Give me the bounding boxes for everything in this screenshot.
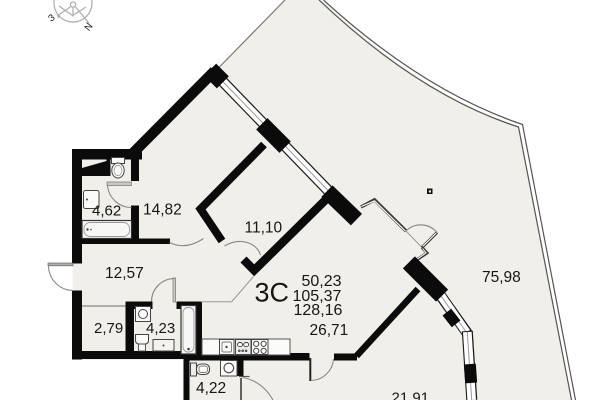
svg-text:128,16: 128,16 (294, 302, 343, 319)
svg-text:3C: 3C (255, 278, 290, 308)
svg-text:12,57: 12,57 (105, 265, 144, 282)
svg-text:4,62: 4,62 (92, 203, 121, 220)
svg-text:26,71: 26,71 (310, 322, 349, 339)
svg-text:14,82: 14,82 (143, 202, 182, 219)
svg-text:75,98: 75,98 (482, 269, 521, 286)
svg-text:11,10: 11,10 (245, 220, 283, 237)
svg-text:2,79: 2,79 (94, 320, 123, 337)
svg-text:4,22: 4,22 (196, 380, 226, 397)
svg-text:4,23: 4,23 (146, 320, 175, 337)
svg-text:21,91: 21,91 (392, 390, 430, 400)
